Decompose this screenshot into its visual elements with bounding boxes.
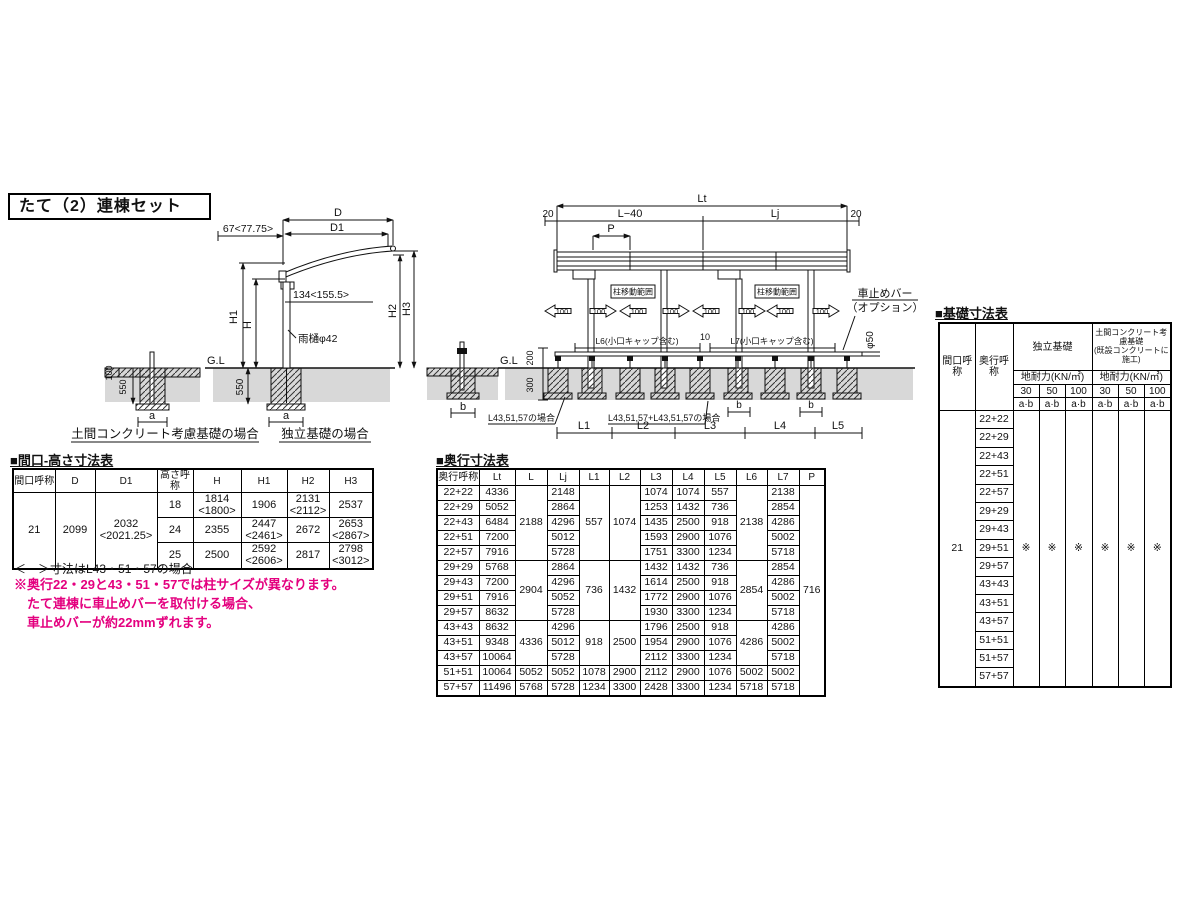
cell: 2854 (767, 561, 799, 576)
depth-code: 29+57 (437, 606, 479, 621)
dim-550-mini-label: 550 (118, 379, 128, 394)
dim-d1-label: D1 (330, 222, 344, 234)
dim-L1-L5: L1 L2 L3 L4 L5 (557, 420, 862, 439)
open-height-table: 間口呼称 D D1 高さ呼称 H H1 H2 H3 21 2099 2032 <… (12, 468, 374, 570)
col-header-bearing: 地耐力(KN/㎡) (1013, 371, 1092, 385)
depth-code: 22+43 (437, 516, 479, 531)
depth-code: 29+29 (975, 502, 1013, 520)
dim-200-label: 200 (525, 350, 535, 365)
cell: 2138 (736, 486, 767, 561)
dim-l4-label: L4 (774, 420, 786, 432)
svg-text:100: 100 (631, 307, 644, 316)
pillar-range-box-2: 柱移動範囲 (755, 285, 799, 298)
catalog-page: たて（2）連棟セット (0, 0, 1200, 900)
col-header-independent: 独立基礎 (1013, 323, 1092, 371)
p-cell: 716 (799, 486, 825, 697)
gutter-text: 雨樋φ42 (298, 332, 338, 345)
depth-code: 22+57 (437, 546, 479, 561)
cell: 1078 (579, 666, 609, 681)
cell: 2099 (55, 493, 95, 569)
cell: 557 (704, 486, 736, 501)
header-row: 間口呼称 奥行呼称 独立基礎 土間コンクリート考慮基礎 (既設コンクリートに施工… (939, 323, 1171, 371)
cell: 1234 (704, 546, 736, 561)
cell: 5012 (547, 636, 579, 651)
roof-section (279, 246, 396, 289)
col-header: L1 (579, 469, 609, 486)
cell: 2900 (672, 666, 704, 681)
cell: 7916 (479, 546, 515, 561)
cell: 2188 (515, 486, 547, 561)
cell: 10064 (479, 666, 515, 681)
col-header: P (799, 469, 825, 486)
cell: 1074 (640, 486, 672, 501)
svg-text:100: 100 (593, 307, 606, 316)
dim-a-mini: a (138, 410, 167, 427)
cell: 1930 (640, 606, 672, 621)
cell: 4286 (767, 576, 799, 591)
dim-D1: D1 (285, 222, 388, 246)
cell: 1796 (640, 621, 672, 636)
cell: 2854 (736, 561, 767, 621)
open-height-table-title: ■間口-高さ寸法表 (10, 450, 113, 469)
stopper-bar (555, 352, 862, 356)
dim-lt-label: Lt (697, 193, 706, 205)
cell: 2798 <3012> (329, 543, 373, 569)
cell: 5052 (547, 666, 579, 681)
cell: 2854 (767, 501, 799, 516)
cell: 5718 (767, 651, 799, 666)
cell: 1074 (609, 486, 640, 561)
reference-mark-cell: ※ (1092, 411, 1118, 687)
cell: 5718 (767, 546, 799, 561)
cell: 5768 (515, 681, 547, 697)
cell: 21 (13, 493, 55, 569)
multi-bay-elevation-diagram: b Lt (415, 190, 930, 450)
maguchi-cell: 21 (939, 411, 975, 687)
cell: 10064 (479, 651, 515, 666)
col-header: H1 (241, 469, 287, 493)
svg-text:100: 100 (704, 307, 717, 316)
col-header: H2 (287, 469, 329, 493)
depth-code: 22+51 (437, 531, 479, 546)
dim-H: H (242, 279, 285, 368)
pink-note-line: たて連棟に車止めバーを取付ける場合、 (27, 595, 345, 614)
case-label-1: L43,51,57の場合 (488, 397, 565, 424)
dim-L6-L7: L6(小口キャップ含む) L7(小口キャップ含む) 10 (575, 332, 835, 352)
svg-text:L43,51,57の場合: L43,51,57の場合 (488, 412, 555, 423)
cell: 11496 (479, 681, 515, 697)
dim-h-label: H (242, 321, 254, 329)
cell: 2900 (672, 591, 704, 606)
roof-band (554, 250, 850, 279)
svg-text:土間コンクリート考慮基礎の場合: 土間コンクリート考慮基礎の場合 (71, 426, 259, 441)
depth-code: 57+57 (975, 668, 1013, 687)
dim-l3-label: L3 (704, 420, 716, 432)
header-row: 奥行呼称 Lt L Lj L1 L2 L3 L4 L5 L6 L7 P (437, 469, 825, 486)
col-header: 高さ呼称 (157, 469, 193, 493)
reference-mark-cell: ※ (1144, 411, 1171, 687)
cell: 3300 (672, 651, 704, 666)
header-row: 間口呼称 D D1 高さ呼称 H H1 H2 H3 (13, 469, 373, 493)
cell: 24 (157, 518, 193, 543)
col-header: L4 (672, 469, 704, 486)
col-header-load: 50 (1118, 385, 1144, 398)
cell: 3300 (672, 546, 704, 561)
dim-20-left: 20 (542, 209, 554, 220)
cell: 1234 (704, 681, 736, 697)
col-header-load: 30 (1092, 385, 1118, 398)
svg-text:100: 100 (666, 307, 679, 316)
cell: 2864 (547, 561, 579, 576)
cell: 1614 (640, 576, 672, 591)
col-header-maguchi: 間口呼称 (939, 323, 975, 411)
cell: 918 (579, 621, 609, 666)
col-header-ab: a·b (1092, 398, 1118, 411)
cell: 5728 (547, 681, 579, 697)
depth-code: 22+22 (437, 486, 479, 501)
col-header: H3 (329, 469, 373, 493)
cell: 5002 (736, 666, 767, 681)
dim-20-right: 20 (850, 209, 862, 220)
foundation-table: 間口呼称 奥行呼称 独立基礎 土間コンクリート考慮基礎 (既設コンクリートに施工… (938, 322, 1172, 688)
cell: 2537 (329, 493, 373, 518)
cell: 7200 (479, 576, 515, 591)
cell: 2900 (672, 531, 704, 546)
dim-b-2: b (800, 400, 822, 417)
svg-text:独立基礎の場合: 独立基礎の場合 (281, 426, 369, 441)
cell: 8632 (479, 621, 515, 636)
stopper-label: 車止めバー （オプション） (843, 286, 924, 350)
col-header: L2 (609, 469, 640, 486)
col-header: D (55, 469, 95, 493)
cell: 4286 (767, 621, 799, 636)
cell: 5728 (547, 546, 579, 561)
dim-h2-label: H2 (387, 304, 399, 318)
reference-mark-cell: ※ (1118, 411, 1144, 687)
cell: 4286 (767, 516, 799, 531)
svg-text:100: 100 (816, 307, 829, 316)
reference-mark-cell: ※ (1065, 411, 1092, 687)
cell: 9348 (479, 636, 515, 651)
cell: 1751 (640, 546, 672, 561)
dim-b-mini-label: b (460, 401, 466, 413)
pink-note-line: 車止めバーが約22mmずれます。 (27, 614, 345, 633)
cell: 1432 (672, 561, 704, 576)
foundation-row: 2122+22※※※※※※ (939, 411, 1171, 429)
cell: 6484 (479, 516, 515, 531)
cell: 2500 (672, 516, 704, 531)
cell: 2672 (287, 518, 329, 543)
side-section-diagram: D D1 67<77.75> 134<155.5> H1 H (55, 205, 425, 450)
cell: 7916 (479, 591, 515, 606)
col-header: Lt (479, 469, 515, 486)
cell: 2864 (547, 501, 579, 516)
col-header-okuyuki: 奥行呼称 (975, 323, 1013, 411)
dim-l5-label: L5 (832, 420, 844, 432)
cell: 2032 <2021.25> (95, 493, 157, 569)
pillar-range-box-1: 柱移動範囲 (611, 285, 655, 298)
cell: 736 (704, 561, 736, 576)
depth-row: 51+5110064505250521078290021122900107650… (437, 666, 825, 681)
cell: 4296 (547, 576, 579, 591)
depth-code: 43+43 (437, 621, 479, 636)
cell: 5052 (479, 501, 515, 516)
dim-beam-height: 134<155.5> (285, 289, 373, 302)
cell: 736 (579, 561, 609, 621)
dim-d-label: D (334, 207, 342, 219)
cell: 1814 <1800> (193, 493, 241, 518)
dim-a-label: a (283, 410, 290, 422)
cell: 1074 (672, 486, 704, 501)
post (283, 282, 290, 368)
cell: 3300 (672, 681, 704, 697)
pink-note-line: ※奥行22・29と43・51・57では柱サイズが異なります。 (14, 576, 345, 595)
cell: 5768 (479, 561, 515, 576)
cell: 2500 (672, 576, 704, 591)
col-header-ab: a·b (1118, 398, 1144, 411)
cell: 2112 (640, 666, 672, 681)
cell: 4286 (736, 621, 767, 666)
cell: 1234 (579, 681, 609, 697)
gl-label: G.L (500, 355, 518, 367)
dim-overhang: 67<77.75> (218, 223, 283, 241)
cell: 5728 (547, 606, 579, 621)
col-header: L7 (767, 469, 799, 486)
cell: 918 (704, 576, 736, 591)
dim-l6-label: L6(小口キャップ含む) (595, 336, 678, 346)
col-header-ab: a·b (1039, 398, 1065, 411)
depth-code: 51+51 (437, 666, 479, 681)
cell: 1432 (640, 561, 672, 576)
dim-beam-label: 134<155.5> (293, 289, 349, 301)
cell: 3300 (672, 606, 704, 621)
depth-code: 43+57 (975, 613, 1013, 631)
svg-text:（オプション）: （オプション） (847, 301, 924, 314)
cell: 5718 (736, 681, 767, 697)
svg-text:100: 100 (742, 307, 755, 316)
pink-notes: ※奥行22・29と43・51・57では柱サイズが異なります。 たて連棟に車止めバ… (14, 576, 345, 633)
cell: 5718 (767, 681, 799, 697)
cell: 2428 (640, 681, 672, 697)
cell: 8632 (479, 606, 515, 621)
depth-code: 22+29 (437, 501, 479, 516)
cell: 1076 (704, 591, 736, 606)
depth-code: 29+57 (975, 558, 1013, 576)
gl-label: G.L (207, 355, 225, 367)
cell: 4296 (547, 516, 579, 531)
col-header-ab: a·b (1144, 398, 1171, 411)
dim-l1-label: L1 (578, 420, 590, 432)
svg-text:柱移動範囲: 柱移動範囲 (613, 287, 653, 297)
cell: 2653 <2867> (329, 518, 373, 543)
cell: 1076 (704, 531, 736, 546)
col-header: L3 (640, 469, 672, 486)
cell: 18 (157, 493, 193, 518)
cell: 2500 (672, 621, 704, 636)
cell: 2112 (640, 651, 672, 666)
cell: 7200 (479, 531, 515, 546)
reference-mark-cell: ※ (1039, 411, 1065, 687)
bracket-note: ＜ ＞寸法はL43・51・57の場合 (14, 560, 193, 577)
cell: 5052 (547, 591, 579, 606)
depth-code: 22+43 (975, 447, 1013, 465)
depth-table-title: ■奥行寸法表 (436, 450, 509, 469)
depth-row: 57+5711496576857281234330024283300123457… (437, 681, 825, 697)
svg-text:柱移動範囲: 柱移動範囲 (757, 287, 797, 297)
table-row: 21 2099 2032 <2021.25> 18 1814 <1800> 19… (13, 493, 373, 518)
cell: 4336 (515, 621, 547, 666)
cell: 1076 (704, 636, 736, 651)
depth-row: 43+4386324336429691825001796250091842864… (437, 621, 825, 636)
caption-independent: 独立基礎の場合 (279, 426, 371, 442)
depth-code: 51+51 (975, 631, 1013, 649)
dim-span-row: 20 L−40 Lj 20 (542, 208, 862, 250)
depth-code: 22+51 (975, 466, 1013, 484)
gutter-label: 雨樋φ42 (288, 330, 338, 345)
depth-code: 29+51 (437, 591, 479, 606)
cell: 5718 (767, 606, 799, 621)
cell: 2500 (193, 543, 241, 569)
dim-l40-label: L−40 (618, 208, 643, 220)
depth-code: 43+51 (975, 594, 1013, 612)
dim-a-mini-label: a (149, 410, 156, 422)
svg-text:車止めバー: 車止めバー (858, 286, 913, 300)
col-header: D1 (95, 469, 157, 493)
col-header-load: 100 (1144, 385, 1171, 398)
cell: 5002 (767, 666, 799, 681)
depth-code: 22+29 (975, 429, 1013, 447)
cell: 918 (704, 621, 736, 636)
depth-code: 29+43 (437, 576, 479, 591)
caption-doma: 土間コンクリート考慮基礎の場合 (71, 426, 259, 442)
cell: 1435 (640, 516, 672, 531)
cell: 5002 (767, 531, 799, 546)
cell: 2817 (287, 543, 329, 569)
depth-code: 57+57 (437, 681, 479, 697)
cell: 1432 (609, 561, 640, 621)
col-header: 間口呼称 (13, 469, 55, 493)
svg-text:φ50: φ50 (865, 331, 876, 349)
cell: 1234 (704, 606, 736, 621)
col-header: L6 (736, 469, 767, 486)
depth-code: 43+51 (437, 636, 479, 651)
col-header: Lj (547, 469, 579, 486)
cell: 2447 <2461> (241, 518, 287, 543)
dim-P: P (593, 223, 630, 250)
depth-code: 22+57 (975, 484, 1013, 502)
cell: 2355 (193, 518, 241, 543)
col-header: H (193, 469, 241, 493)
cell: 1593 (640, 531, 672, 546)
depth-code: 43+57 (437, 651, 479, 666)
cell: 557 (579, 486, 609, 561)
dim-300-label: 300 (525, 377, 535, 392)
depth-row: 29+2957682904286473614321432143273628542… (437, 561, 825, 576)
cell: 5052 (515, 666, 547, 681)
svg-text:100: 100 (556, 307, 569, 316)
depth-code: 51+57 (975, 650, 1013, 668)
dim-overhang-label: 67<77.75> (223, 223, 273, 235)
svg-text:b: b (736, 400, 742, 411)
col-header: 奥行呼称 (437, 469, 479, 486)
cell: 1432 (672, 501, 704, 516)
depth-code: 29+51 (975, 539, 1013, 557)
depth-table: 奥行呼称 Lt L Lj L1 L2 L3 L4 L5 L6 L7 P 22+2… (436, 468, 826, 697)
col-header-load: 100 (1065, 385, 1092, 398)
col-header-bearing: 地耐力(KN/㎡) (1092, 371, 1171, 385)
dim-b-1: b (728, 400, 750, 417)
dim-100-label: 100 (104, 365, 114, 380)
cell: 1954 (640, 636, 672, 651)
mini-doma-footing: b (427, 342, 498, 418)
cell: 2900 (609, 666, 640, 681)
cell: 2500 (609, 621, 640, 666)
cell: 1772 (640, 591, 672, 606)
cell: 1076 (704, 666, 736, 681)
dim-l7-label: L7(小口キャップ含む) (730, 336, 813, 346)
dim-h3-label: H3 (401, 302, 413, 316)
col-header-load: 30 (1013, 385, 1039, 398)
dim-l2-label: L2 (637, 420, 649, 432)
cell: 918 (704, 516, 736, 531)
reference-mark-cell: ※ (1013, 411, 1039, 687)
depth-row: 22+2243362188214855710741074107455721382… (437, 486, 825, 501)
ground-main (205, 368, 395, 410)
cell: 2592 <2606> (241, 543, 287, 569)
cell: 5002 (767, 591, 799, 606)
cell: 2900 (672, 636, 704, 651)
dim-h1-label: H1 (228, 310, 240, 324)
col-header-ab: a·b (1013, 398, 1039, 411)
col-header: L5 (704, 469, 736, 486)
cell: 4296 (547, 621, 579, 636)
dim-phi50: φ50 (862, 331, 880, 356)
depth-code: 43+43 (975, 576, 1013, 594)
dim-10-label: 10 (700, 332, 710, 342)
col-header-ab: a·b (1065, 398, 1092, 411)
col-header: L (515, 469, 547, 486)
cell: 1253 (640, 501, 672, 516)
cell: 3300 (609, 681, 640, 697)
depth-code: 22+22 (975, 411, 1013, 429)
depth-code: 29+29 (437, 561, 479, 576)
foundation-table-title: ■基礎寸法表 (935, 303, 1008, 322)
cell: 5728 (547, 651, 579, 666)
cell: 736 (704, 501, 736, 516)
dim-lj-label: Lj (771, 208, 780, 220)
cell: 1234 (704, 651, 736, 666)
dim-a-main: a (269, 410, 303, 427)
dim-p-label: P (607, 223, 614, 235)
svg-text:b: b (808, 400, 814, 411)
cell: 5002 (767, 636, 799, 651)
dim-550-label: 550 (235, 378, 246, 395)
cell: 4336 (479, 486, 515, 501)
col-header-load: 50 (1039, 385, 1065, 398)
cell: 2904 (515, 561, 547, 621)
col-header-doma: 土間コンクリート考慮基礎 (既設コンクリートに施工) (1092, 323, 1171, 371)
cell: 2131 <2112> (287, 493, 329, 518)
cell: 5012 (547, 531, 579, 546)
cell: 1906 (241, 493, 287, 518)
svg-text:100: 100 (778, 307, 791, 316)
cell: 2138 (767, 486, 799, 501)
depth-code: 29+43 (975, 521, 1013, 539)
cell: 2148 (547, 486, 579, 501)
